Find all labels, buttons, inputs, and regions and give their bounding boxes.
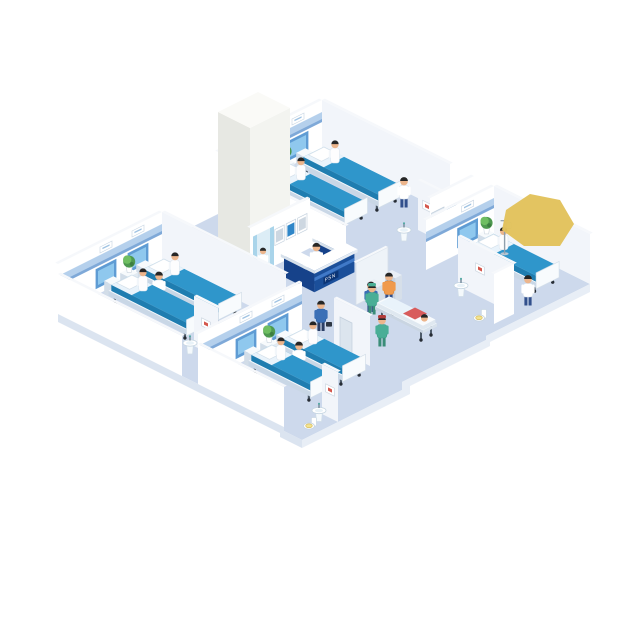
bath-end-wall — [494, 264, 514, 324]
isometric-hospital-scene: PSN — [0, 0, 640, 640]
hospital-illustration: PSN — [0, 0, 640, 640]
